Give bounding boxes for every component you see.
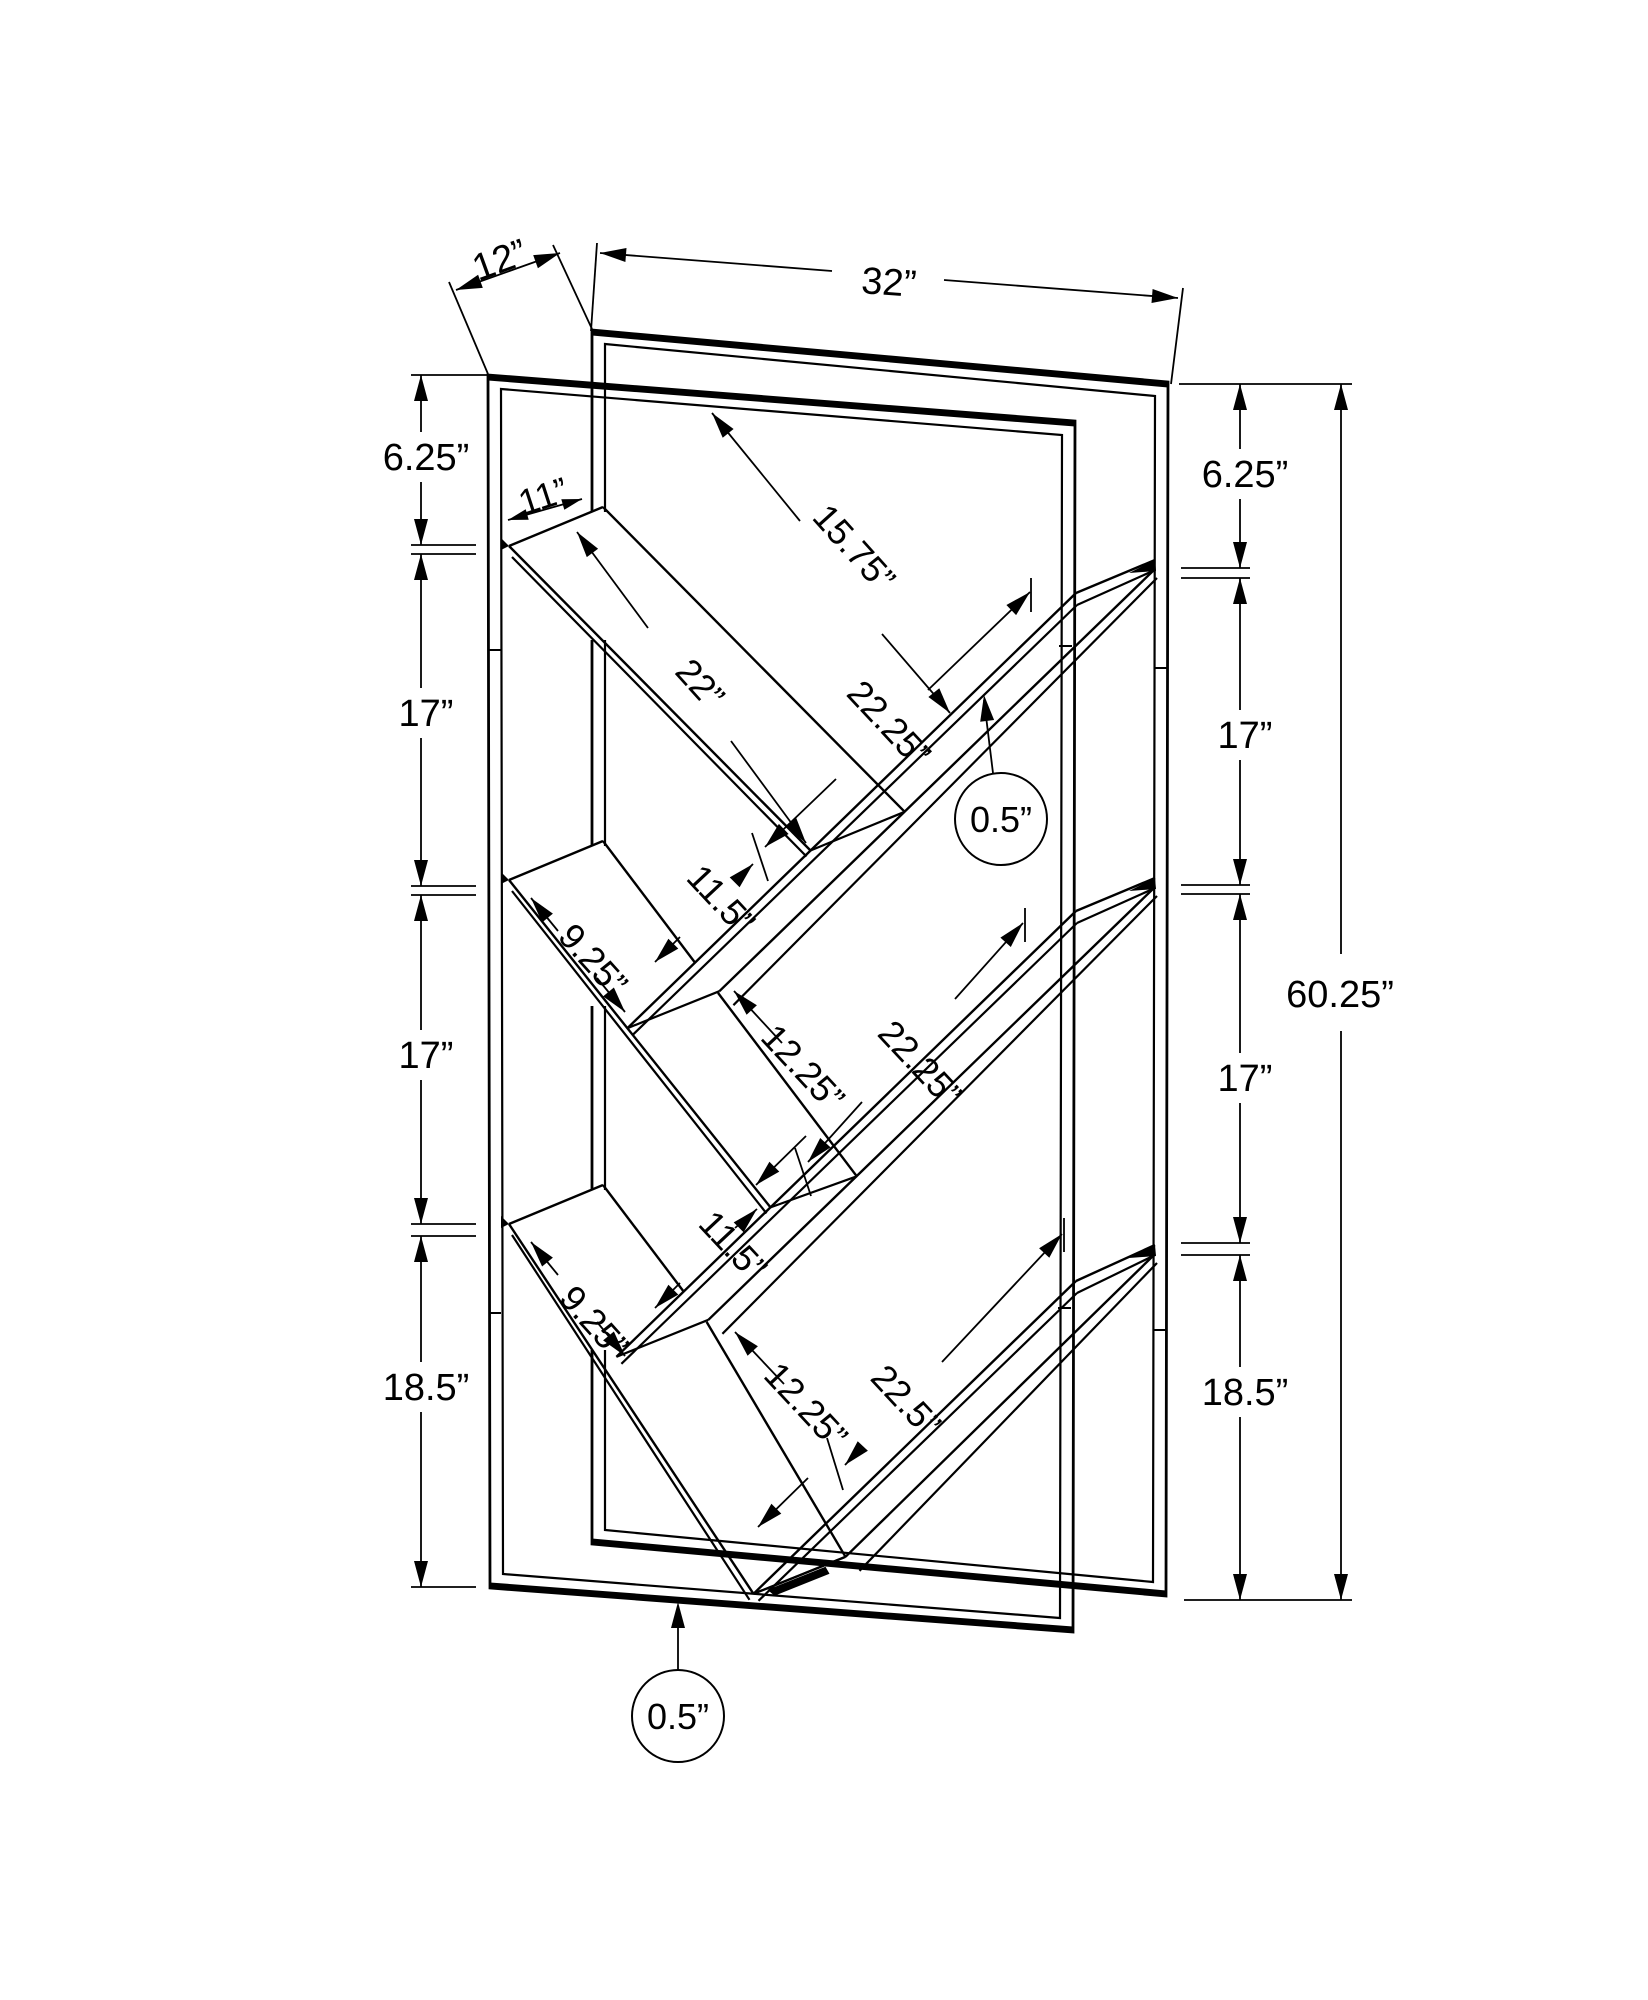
svg-text:6.25”: 6.25”: [383, 437, 470, 479]
svg-text:6.25”: 6.25”: [1202, 454, 1289, 496]
svg-text:17”: 17”: [1218, 715, 1273, 757]
svg-text:17”: 17”: [1218, 1058, 1273, 1100]
svg-text:17”: 17”: [399, 693, 454, 735]
svg-text:60.25”: 60.25”: [1286, 974, 1394, 1016]
svg-text:0.5”: 0.5”: [647, 1696, 709, 1737]
svg-text:17”: 17”: [399, 1035, 454, 1077]
svg-text:18.5”: 18.5”: [1202, 1372, 1289, 1414]
svg-text:18.5”: 18.5”: [383, 1367, 470, 1409]
svg-text:32”: 32”: [860, 260, 918, 306]
svg-text:0.5”: 0.5”: [970, 799, 1032, 840]
